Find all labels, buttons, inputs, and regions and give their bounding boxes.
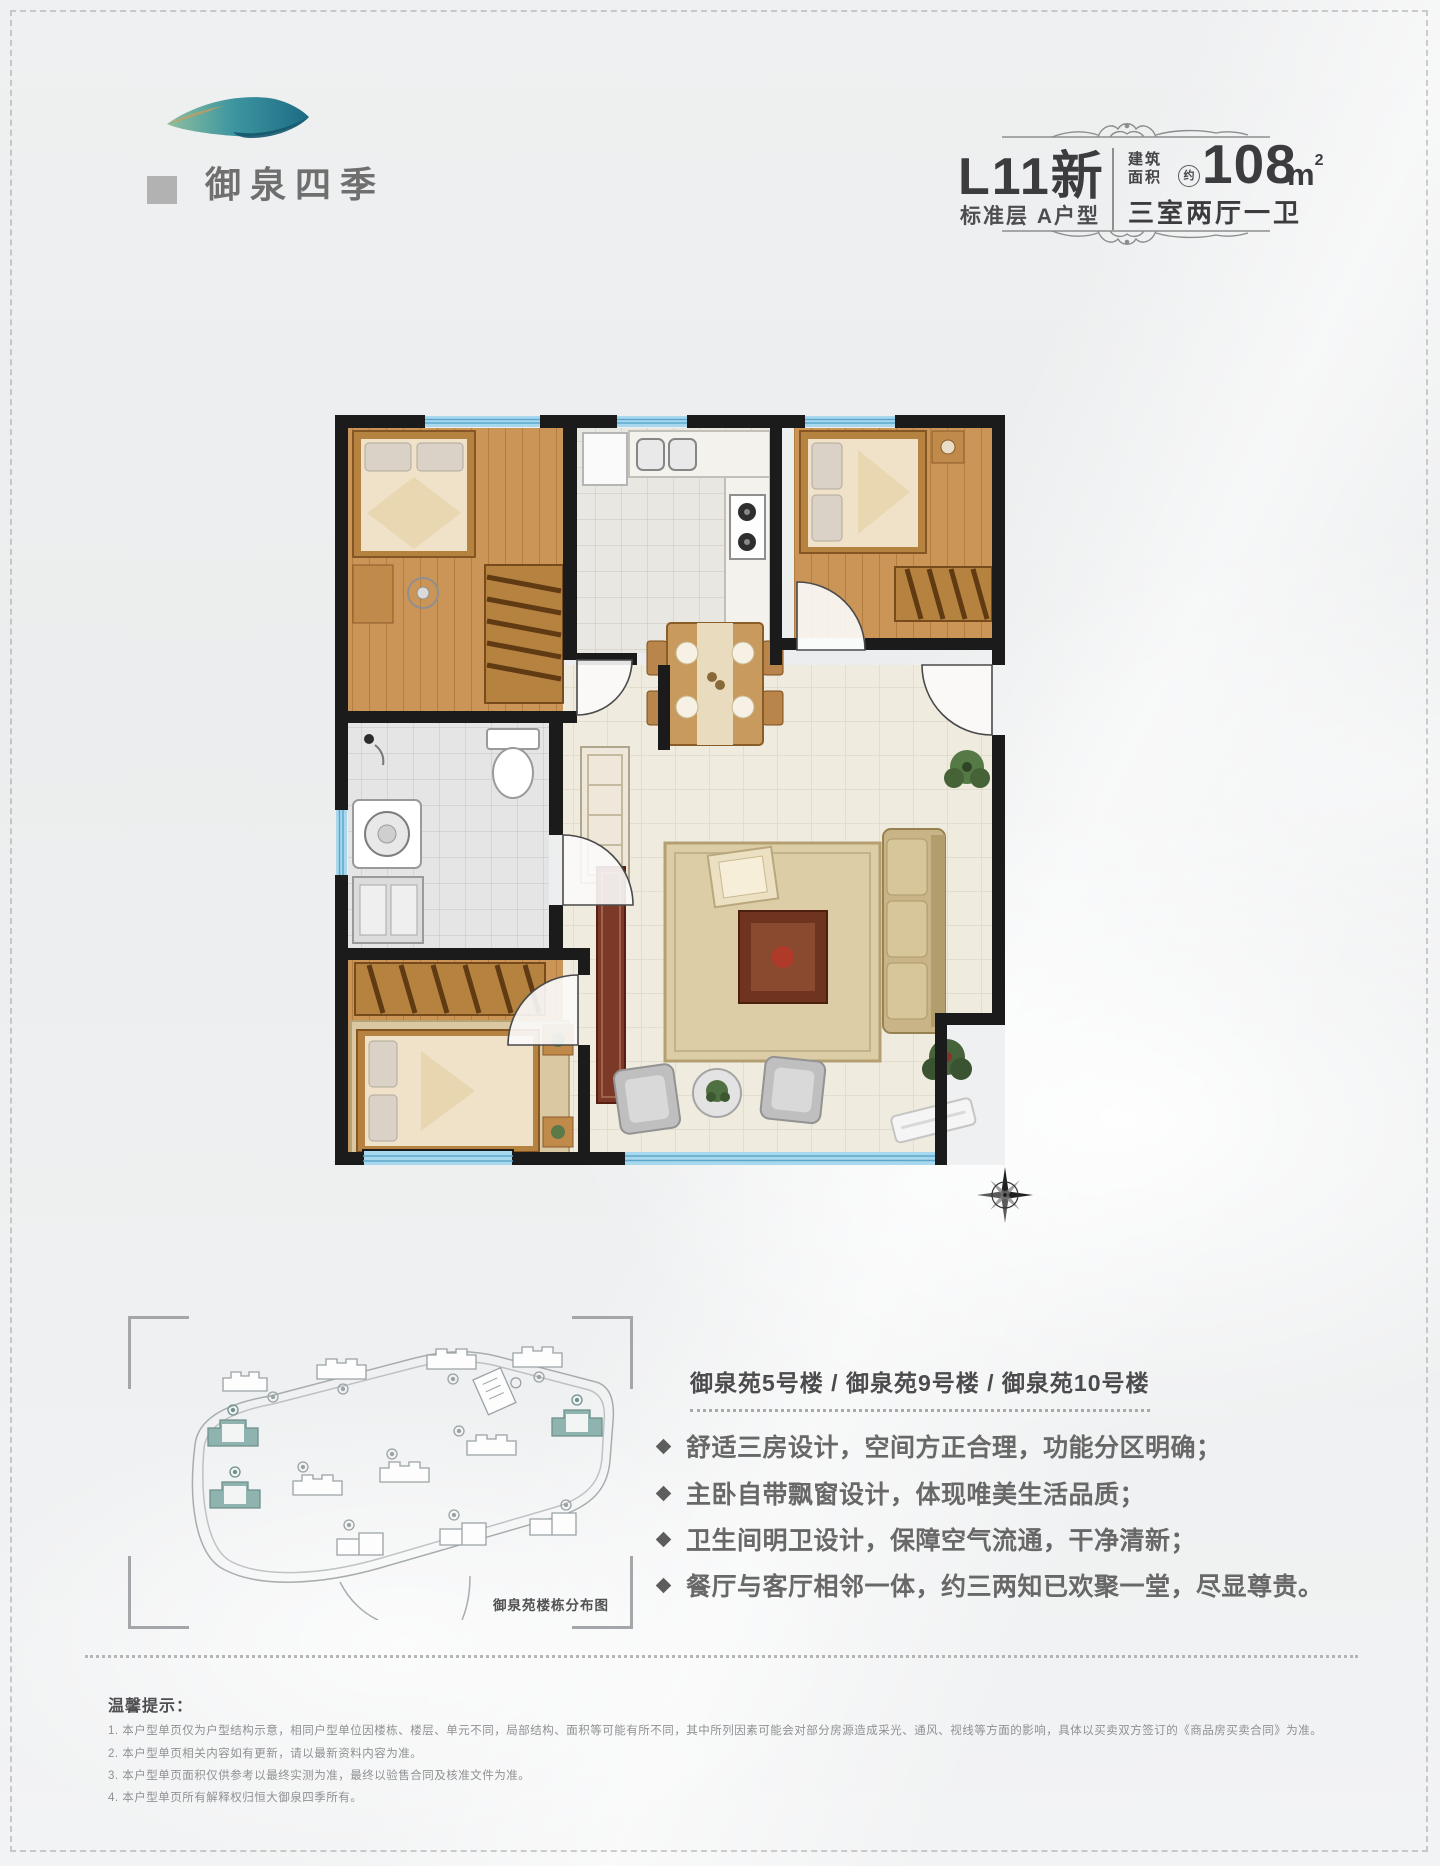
bedroom-a-window [425, 416, 540, 427]
feature-bullet: 主卧自带飘窗设计，体现唯美生活品质； [658, 1477, 1358, 1509]
disclaimer-item: 2. 本户型单页相关内容如有更新，请以最新资料内容为准。 [108, 1745, 422, 1761]
disclaimer-item: 4. 本户型单页所有解释权归恒大御泉四季所有。 [108, 1789, 362, 1805]
compass-icon [976, 1166, 1034, 1224]
side-table [708, 847, 779, 907]
sink-bowl [637, 439, 664, 470]
area-unit: m2 [1287, 152, 1323, 193]
bedroom-a-wardrobe [485, 565, 563, 703]
master-bed [357, 1030, 539, 1152]
diamond-bullet-icon [656, 1577, 672, 1593]
siteplan-sketch [140, 1330, 620, 1620]
dotted-separator [690, 1409, 1150, 1412]
sink-bowl [669, 439, 696, 470]
diamond-bullet-icon [656, 1485, 672, 1501]
area-value: 108 [1202, 132, 1297, 196]
coffee-table [739, 911, 827, 1003]
buildings-line: 御泉苑5号楼 / 御泉苑9号楼 / 御泉苑10号楼 [690, 1364, 1150, 1398]
diamond-bullet-icon [656, 1531, 672, 1547]
bathroom-window [336, 810, 347, 875]
siteplan-caption: 御泉苑楼栋分布图 [493, 1594, 609, 1614]
ornament-flourish-bottom-icon [1002, 228, 1270, 248]
approx-circle-mark: 约 [1178, 165, 1200, 187]
logo-name: 御泉四季 [205, 156, 385, 208]
armchair [760, 1056, 826, 1124]
diamond-bullet-icon [656, 1438, 672, 1454]
area-label: 建筑 面积 [1128, 151, 1162, 187]
logo-leaf-icon [163, 86, 315, 148]
highlighted-building [210, 1467, 260, 1508]
logo-square-mark [147, 176, 177, 204]
feature-bullet: 卫生间明卫设计，保障空气流通，干净清新； [658, 1523, 1358, 1555]
kitchen-window [617, 416, 687, 427]
sofa [883, 829, 945, 1033]
bedroom-b-window [805, 416, 895, 427]
bathroom-vanity [353, 877, 423, 943]
highlighted-building [552, 1395, 602, 1436]
stove-icon [730, 495, 765, 559]
room-layout-text: 三室两厅一卫 [1128, 193, 1302, 230]
round-table [693, 1069, 741, 1117]
armchair [613, 1063, 681, 1135]
disclaimer-title: 温馨提示： [108, 1692, 193, 1716]
bedroom-b-wardrobe [895, 567, 992, 621]
title-divider [1112, 148, 1114, 230]
shower-head-icon [364, 734, 374, 744]
plan-floor-type: 标准层 A户型 [960, 200, 1100, 230]
plan-code: L11新 [958, 134, 1105, 209]
disclaimer-item: 1. 本户型单页仅为户型结构示意，相同户型单位因楼栋、楼层、单元不同，局部结构、… [108, 1722, 1322, 1738]
feature-bullet: 餐厅与客厅相邻一体，约三两知已欢聚一堂，尽显尊贵。 [658, 1569, 1358, 1601]
flyer-page: 御泉四季 L11新 标准层 A户型 建筑 面积 约 108 m2 三室两厅一卫 [0, 0, 1440, 1866]
disclaimer-item: 3. 本户型单页面积仅供参考以最终实测为准，最终以验售合同及核准文件为准。 [108, 1767, 530, 1783]
highlighted-building [208, 1405, 258, 1446]
dotted-separator [85, 1655, 1358, 1658]
floor-plan [335, 415, 1005, 1165]
master-bay-window [363, 1150, 513, 1165]
master-wardrobe [355, 963, 545, 1015]
feature-bullet: 舒适三房设计，空间方正合理，功能分区明确； [658, 1430, 1358, 1462]
balcony-window [625, 1152, 935, 1165]
washing-machine-icon [353, 800, 421, 868]
